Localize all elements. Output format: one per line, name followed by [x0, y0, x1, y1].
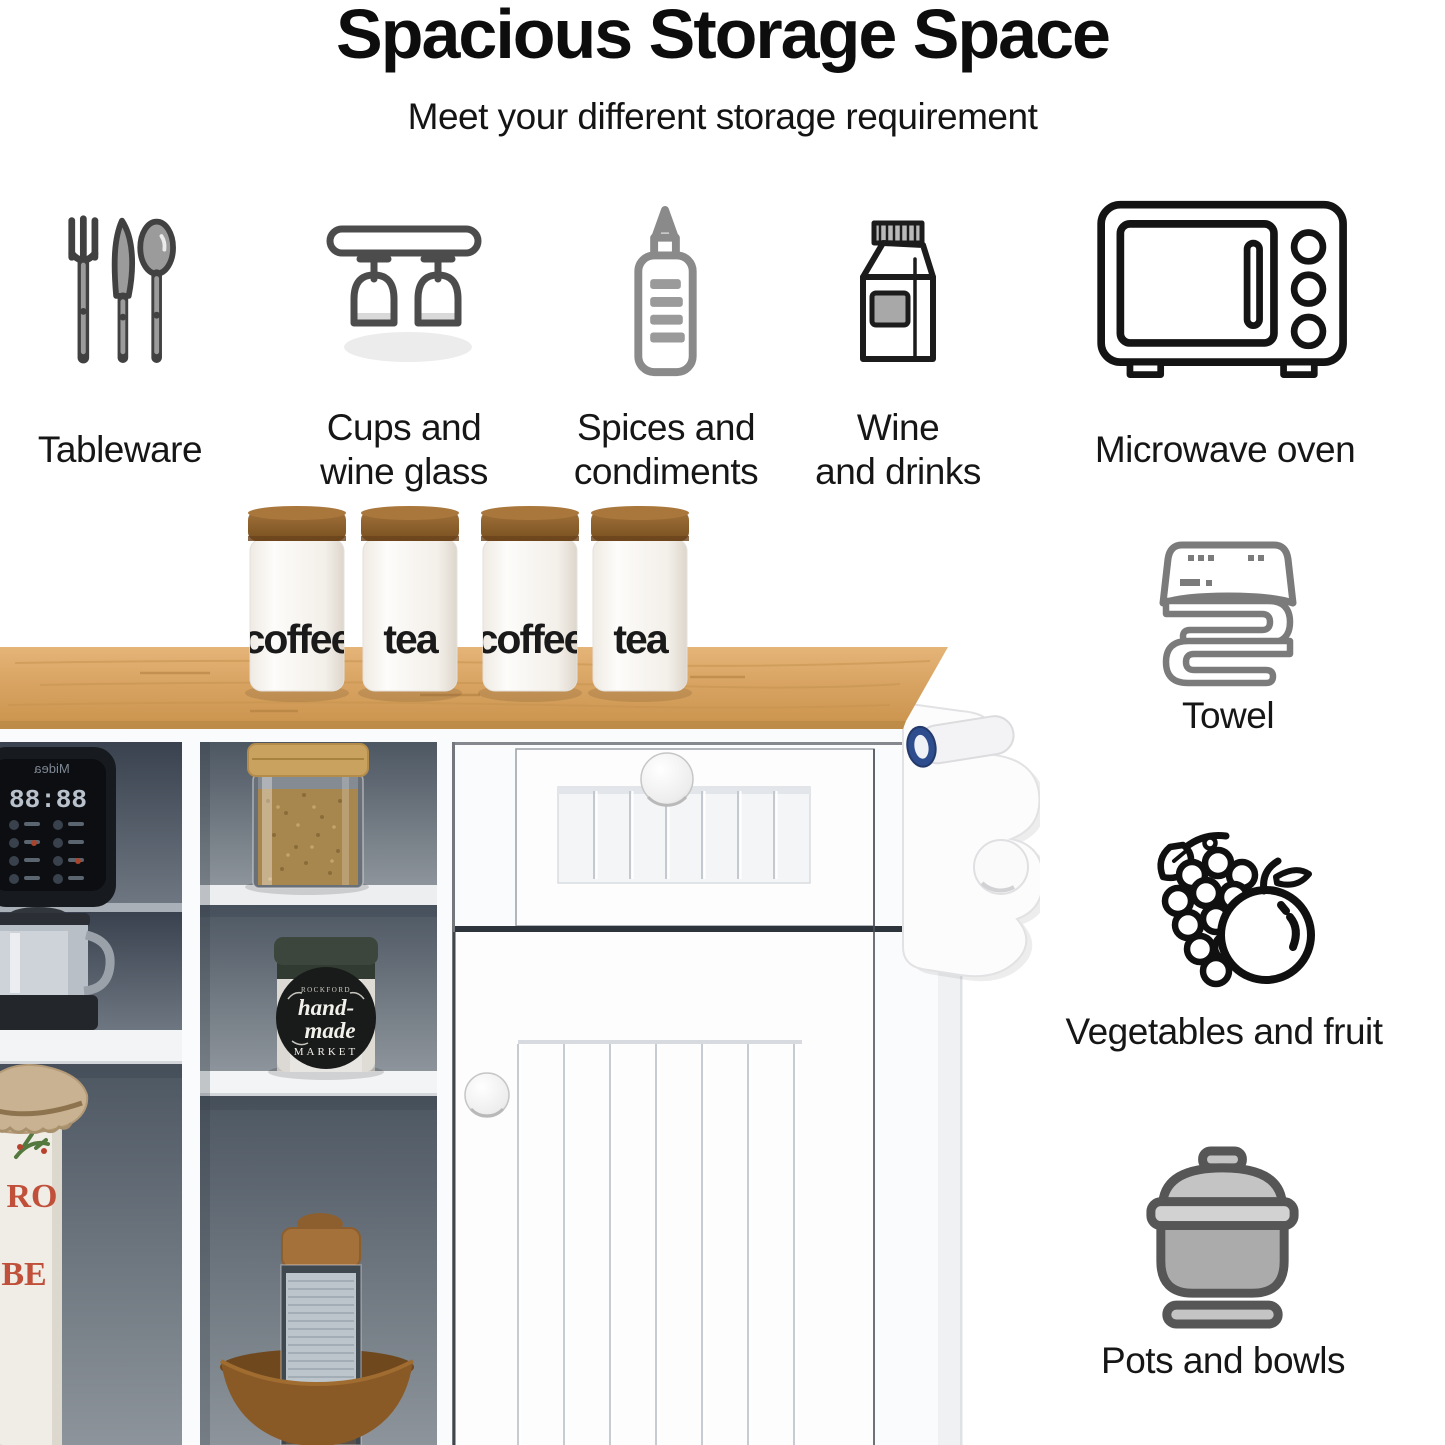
feature-label: Wine and drinks [788, 405, 1008, 495]
towel-icon [1118, 528, 1338, 698]
jar-label-line2: made [304, 1018, 355, 1043]
canister-label: tea [383, 616, 439, 662]
product-infographic-page: { "page": { "title": "Spacious Storage S… [0, 0, 1445, 1445]
feature-label: Pots and bowls [1023, 1335, 1423, 1387]
handmade-jar: ROCKFORD hand- made MARKET [268, 937, 384, 1080]
feature-pots-bowls: Pots and bowls [1023, 1145, 1423, 1395]
feature-vegetables-fruit: Vegetables and fruit [1012, 822, 1436, 1072]
grapes-orange-icon [1012, 822, 1436, 992]
pot-icon [1023, 1145, 1423, 1330]
towel-peg [974, 840, 1028, 894]
appliance-display: 88:88 [9, 785, 87, 815]
canister-tea-1: tea [361, 506, 459, 691]
feature-label: Microwave oven [1063, 405, 1387, 495]
cooker-appliance: Midea 88:88 [0, 747, 116, 907]
jar-label-line3: MARKET [294, 1046, 358, 1058]
feature-label: Towel [1118, 690, 1338, 742]
grain-jar [245, 744, 369, 895]
squeeze-bottle-icon [556, 200, 776, 385]
page-subtitle: Meet your different storage requirement [0, 96, 1445, 138]
feature-cups-wine-glass: Cups and wine glass [294, 200, 514, 500]
appliance-brand: Midea [34, 761, 70, 776]
wood-countertop [0, 647, 948, 729]
milk-carton-icon [788, 200, 1008, 385]
jar-label-top: ROCKFORD [301, 986, 351, 994]
feature-label: Tableware [10, 405, 230, 495]
feature-label: Cups and wine glass [294, 405, 514, 495]
canister-label: coffee [243, 616, 353, 662]
canister-label: tea [613, 616, 669, 662]
kitchen-cart-photo: Midea 88:88 RO BE [0, 495, 1040, 1445]
feature-wine-drinks: Wine and drinks [788, 200, 1008, 500]
canister-label: coffee [476, 616, 586, 662]
wine-glass-rack-icon [294, 200, 514, 385]
cutlery-icon [10, 200, 230, 385]
microwave-icon [1063, 200, 1387, 385]
feature-towel: Towel [1118, 528, 1338, 748]
feature-microwave-oven: Microwave oven [1063, 200, 1387, 500]
feature-spices-condiments: Spices and condiments [556, 200, 776, 500]
canister-coffee-2: coffee [476, 506, 586, 691]
feature-label: Vegetables and fruit [1012, 1004, 1436, 1060]
bottle-letters-1: RO [7, 1178, 58, 1215]
towel-rack [903, 703, 1040, 981]
canister-tea-2: tea [591, 506, 689, 691]
bottle-letters-2: BE [1, 1256, 46, 1293]
canister-coffee-1: coffee [243, 506, 353, 691]
feature-label: Spices and condiments [556, 405, 776, 495]
page-title: Spacious Storage Space [0, 0, 1445, 74]
feature-tableware: Tableware [10, 200, 230, 500]
jar-label-line1: hand- [298, 995, 354, 1020]
